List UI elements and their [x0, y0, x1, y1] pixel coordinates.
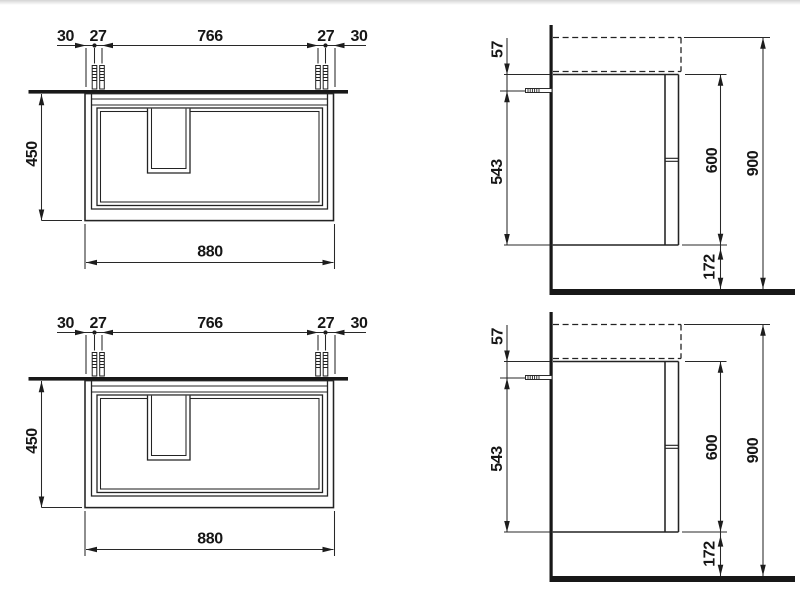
front-view-bottom: 30 27 766 27 30 450 880	[24, 315, 368, 556]
wall-line	[550, 25, 553, 290]
drawing-row-top: 30 27 766 27 30 450 880	[24, 25, 795, 295]
drawing-row-bottom: 30 27 766 27 30 450 880	[24, 312, 795, 582]
dimension-label-172: 172	[701, 541, 718, 567]
drawer-front-split	[665, 445, 679, 448]
technical-drawing-page: 30 27 766 27 30 450 880	[0, 0, 800, 597]
mounting-bolt-icon	[323, 66, 328, 90]
cabinet-top-rails	[92, 99, 328, 105]
dimension-label-900: 900	[745, 150, 762, 176]
dimension-label-543: 543	[489, 159, 506, 185]
mounting-bolt-side-icon	[526, 376, 553, 380]
floor-line	[550, 576, 796, 582]
dimension-label-27-right: 27	[317, 315, 334, 332]
dimension-label-543: 543	[489, 446, 506, 472]
siphon-cutout-fill	[148, 396, 190, 460]
front-view-top: 30 27 766 27 30 450 880	[24, 28, 368, 269]
drawer-front-split	[665, 158, 679, 161]
dimension-label-30-left: 30	[57, 315, 74, 332]
mounting-bolt-icon	[100, 353, 105, 377]
floor-line	[550, 289, 796, 295]
dimension-label-450: 450	[24, 428, 41, 454]
dimension-label-600: 600	[704, 434, 721, 460]
mounting-bolt-icon	[323, 353, 328, 377]
dimension-label-30-left: 30	[57, 28, 74, 45]
left-dimension-lines	[500, 325, 553, 532]
washbasin-dashed-outline	[553, 38, 681, 72]
dimension-label-27-left: 27	[90, 315, 107, 332]
side-view-top: 57 543 600 900 172	[489, 25, 795, 295]
mounting-bolt-icon	[92, 66, 97, 90]
mounting-bolt-icon	[100, 66, 105, 90]
height-dimension-line	[39, 94, 82, 221]
wall-line	[550, 312, 553, 577]
dimension-label-172: 172	[701, 254, 718, 280]
technical-drawing-canvas: 30 27 766 27 30 450 880	[0, 0, 800, 597]
dimension-label-57: 57	[489, 41, 506, 58]
cabinet-inner-outline	[92, 94, 328, 209]
dimension-label-30-right: 30	[351, 28, 368, 45]
dimension-label-766: 766	[197, 315, 223, 332]
dimension-label-30-right: 30	[351, 315, 368, 332]
cabinet-inner-outline	[92, 381, 328, 496]
washbasin-dashed-outline	[553, 325, 681, 359]
drawer-inner-outline	[101, 399, 320, 490]
mounting-bolt-side-icon	[526, 89, 553, 93]
cabinet-top-rails	[92, 386, 328, 392]
dimension-label-600: 600	[704, 147, 721, 173]
side-view-bottom: 57 543 600 900 172	[489, 312, 795, 582]
drawer-inner-outline	[101, 112, 320, 203]
dimension-label-27-left: 27	[90, 28, 107, 45]
dimension-label-900: 900	[745, 437, 762, 463]
cabinet-side-outline	[553, 362, 679, 533]
mounting-bolt-icon	[316, 66, 321, 90]
dimension-label-880: 880	[197, 530, 223, 547]
siphon-cutout-fill	[148, 109, 190, 173]
cabinet-side-outline	[553, 75, 679, 246]
photo-edge-shade	[0, 0, 800, 5]
drawer-outline	[97, 395, 323, 493]
mounting-bolt-icon	[92, 353, 97, 377]
left-dimension-lines	[500, 38, 553, 245]
dimension-label-766: 766	[197, 28, 223, 45]
mounting-bolt-icon	[316, 353, 321, 377]
height-dimension-line	[39, 381, 82, 508]
dimension-label-880: 880	[197, 243, 223, 260]
dimension-label-57: 57	[489, 328, 506, 345]
dimension-label-450: 450	[24, 141, 41, 167]
drawer-outline	[97, 108, 323, 206]
dimension-label-27-right: 27	[317, 28, 334, 45]
